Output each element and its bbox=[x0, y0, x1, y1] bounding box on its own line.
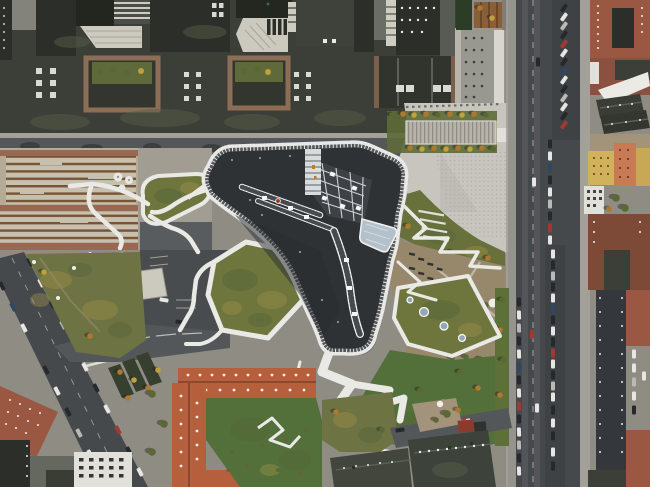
salmon-building bbox=[614, 143, 636, 186]
entrance-canopy bbox=[305, 149, 321, 195]
terraced-building bbox=[455, 28, 505, 106]
courtyard-building bbox=[230, 58, 288, 108]
red-roof-house bbox=[458, 419, 475, 432]
red-roof-vent bbox=[276, 199, 281, 204]
tower-roof bbox=[236, 0, 292, 18]
courtyard-building bbox=[86, 58, 158, 110]
yellow-building bbox=[588, 151, 614, 185]
gabled-building bbox=[374, 56, 456, 108]
billboard bbox=[590, 62, 599, 84]
courtyard-parking bbox=[626, 346, 650, 430]
main-street-east bbox=[506, 0, 590, 487]
tree-courtyard bbox=[386, 111, 497, 153]
aerial-photo-canvas bbox=[0, 0, 650, 487]
aerial-photo: Aerial drone view of a boomerang-shaped … bbox=[0, 0, 650, 487]
gabled-roof-east bbox=[408, 430, 496, 487]
tower-roof bbox=[76, 0, 114, 26]
